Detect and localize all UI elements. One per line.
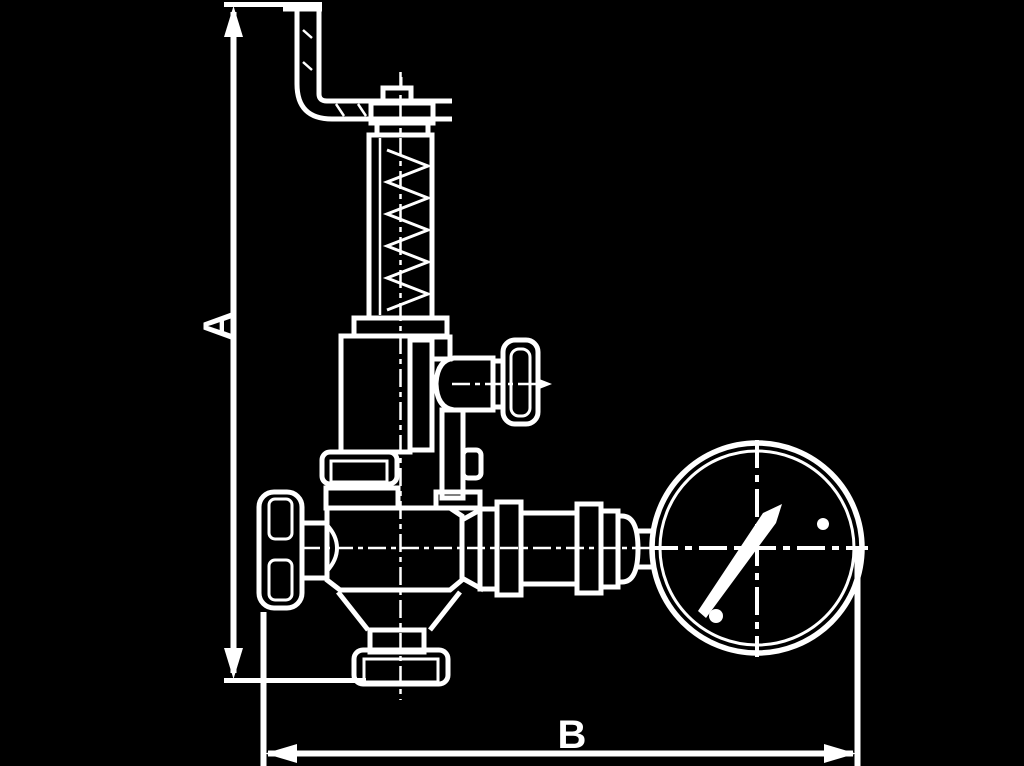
gauge-needle-hub-dot [709, 609, 723, 623]
dim-b-label: B [558, 713, 587, 757]
body-taper-left [338, 592, 368, 630]
handwheel-window-bottom [269, 560, 292, 600]
downpipe-boss [463, 450, 481, 478]
small-handwheel-rim [511, 349, 530, 416]
nut-band [326, 488, 398, 508]
pressure-gauge [652, 443, 862, 653]
dim-b-arrow-left [265, 744, 297, 763]
valve-technical-drawing: A B [0, 0, 1024, 766]
spring-coils [387, 150, 428, 310]
handwheel-stem [302, 523, 327, 578]
left-handwheel [259, 492, 327, 608]
gauge-screw-dot [817, 518, 829, 530]
dim-a-label: A [196, 312, 240, 341]
dim-a-arrow-down [224, 648, 243, 679]
body-taper-right [430, 592, 460, 630]
outlet-downpipe [442, 410, 463, 498]
valve-body [327, 508, 462, 684]
side-outlet-valve [432, 337, 538, 508]
dim-a-arrow-up [224, 6, 243, 37]
spring-bonnet-assembly [341, 77, 447, 452]
handwheel-window-top [269, 499, 292, 539]
outlet-step-block [432, 337, 450, 359]
gauge-needle [698, 504, 782, 618]
small-handwheel [503, 340, 538, 424]
side-column [410, 340, 432, 450]
handwheel-outer [259, 492, 302, 608]
gland-nut [322, 452, 398, 508]
drawing-canvas: A B [0, 0, 1024, 766]
dim-b-arrow-right [824, 744, 856, 763]
center-lines [302, 72, 868, 700]
nut-face [331, 461, 387, 482]
